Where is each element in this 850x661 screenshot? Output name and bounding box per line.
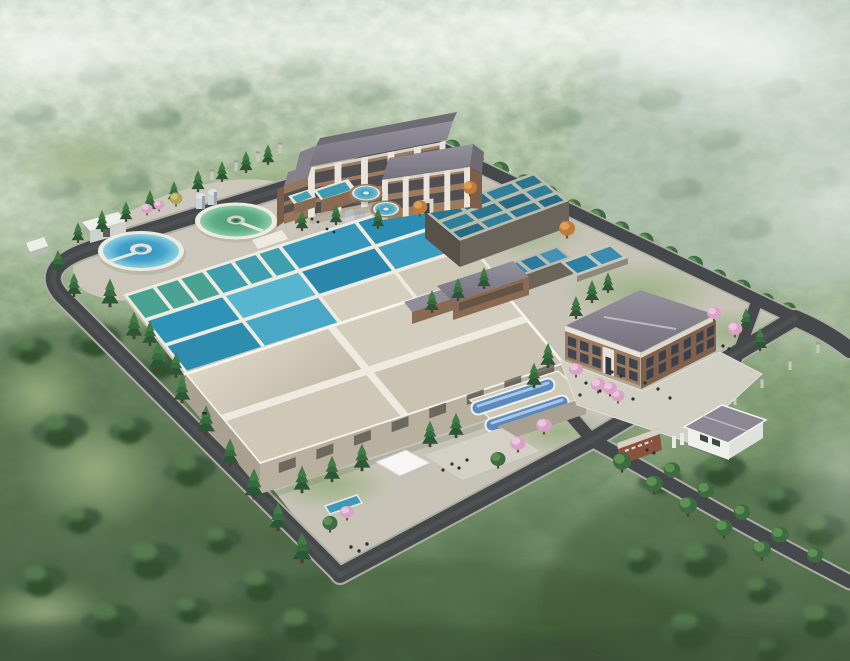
circular-clarifier-blue [98,231,186,275]
utility-door [103,228,110,237]
rendering-canvas [0,0,850,661]
top-haze [0,0,850,90]
motorbike [202,412,207,415]
wing-end-wall [277,186,284,227]
gate-pillar [680,433,684,445]
gate-pillar [672,436,676,448]
foreground-forest-vignette [0,620,850,661]
